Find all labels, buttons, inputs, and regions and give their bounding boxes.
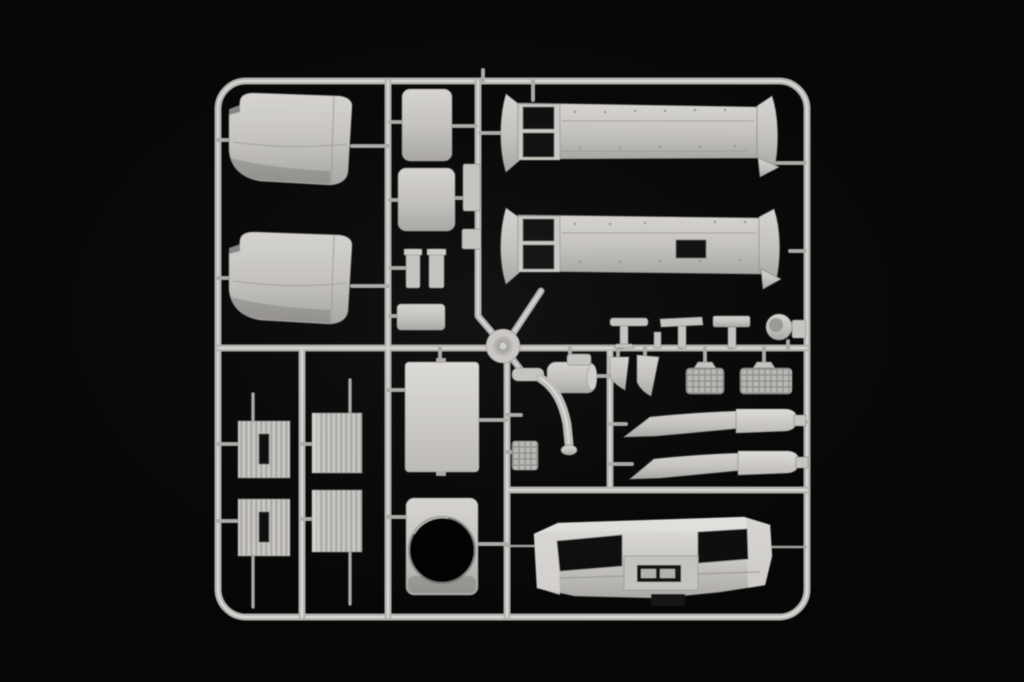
horn-cover: [766, 314, 792, 340]
hatch-panel-1: [402, 89, 452, 161]
square-plate: [462, 229, 481, 249]
headlamp-recess-right: [698, 529, 748, 563]
roof-panel: [405, 358, 479, 476]
bumper-lower-step: [651, 594, 685, 606]
fender-upper: [229, 93, 352, 185]
side-tab: [792, 320, 806, 338]
small-plate: [397, 304, 445, 330]
hatch-panel-2: [398, 168, 455, 231]
ribbed-panel-2: [238, 499, 290, 556]
sprue-photo: [0, 0, 1024, 682]
fender-lower: [229, 232, 352, 324]
pillar-bar-2: [427, 249, 446, 288]
pillar-bar-1: [404, 249, 422, 288]
hub-disc: [486, 329, 520, 363]
mesh-square: [512, 441, 538, 470]
round-opening-panel: [406, 498, 478, 595]
licence-plate-recess: [624, 556, 698, 590]
ribbed-panel-1: [238, 421, 290, 478]
headlamp-recess-left: [557, 535, 622, 571]
photo-canvas: [0, 0, 1024, 682]
skirt-rect-hole: [676, 240, 706, 258]
ribbed-panel-4: [312, 490, 362, 552]
vertical-plate: [463, 164, 480, 211]
ribbed-panel-3: [312, 413, 362, 473]
